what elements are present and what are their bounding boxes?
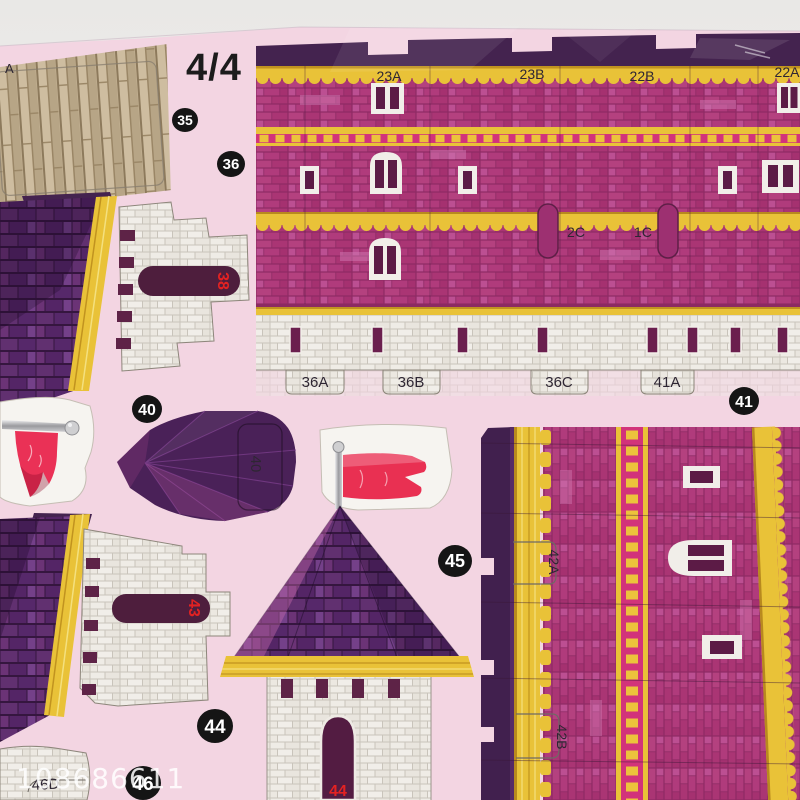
cone-label-40: 40 — [247, 456, 264, 473]
edge-piece-label: A — [5, 61, 14, 76]
page-indicator: 4/4 — [186, 47, 242, 89]
red-label-38: 38 — [214, 272, 231, 290]
badge-41: 41 — [729, 387, 759, 415]
tab-label-42b: 42B — [554, 725, 570, 750]
tab-label-42a: 42A — [546, 550, 562, 576]
badge-40: 40 — [132, 395, 162, 423]
svg-text:41: 41 — [735, 394, 753, 411]
rotated-window — [683, 466, 720, 488]
svg-text:44: 44 — [204, 717, 226, 738]
double-window — [371, 83, 404, 114]
rotated-window — [702, 635, 742, 659]
badge-36: 36 — [217, 151, 245, 177]
tower-wall-piece-42: 42A 42B — [481, 426, 800, 800]
red-label-44: 44 — [329, 783, 347, 800]
arched-window — [370, 152, 402, 194]
svg-text:40: 40 — [138, 402, 156, 419]
red-label-43: 43 — [185, 599, 202, 617]
watermark: 108686611 — [16, 762, 185, 795]
double-window-right — [762, 160, 799, 193]
tab-label-36c: 36C — [545, 374, 573, 391]
badge-35: 35 — [172, 108, 198, 132]
tab-label-36a: 36A — [302, 374, 329, 391]
tab-label-36b: 36B — [398, 374, 425, 391]
arched-window — [369, 238, 401, 280]
puzzle-sheet-photo: A 4/4 2C 1C 23A — [0, 0, 800, 800]
slot-label-2c: 2C — [567, 224, 585, 240]
badge-45: 45 — [438, 545, 472, 577]
slot-cutout — [538, 204, 558, 258]
flag-piece — [0, 397, 94, 506]
castle-wall-piece: 2C 1C 23A 23B 22B 22A 36A 36B 36C 41A — [256, 33, 800, 394]
slot-label-1c: 1C — [634, 224, 652, 240]
panel-label-22b: 22B — [630, 68, 655, 84]
svg-text:45: 45 — [445, 551, 465, 571]
tab-label-41a: 41A — [654, 374, 681, 391]
pole-ball — [333, 442, 344, 453]
rotated-arched-window — [668, 540, 732, 576]
pole-ball — [65, 421, 79, 435]
svg-text:35: 35 — [177, 112, 193, 128]
svg-text:36: 36 — [223, 156, 240, 173]
dark-top-band — [481, 427, 514, 800]
tower-flag-pole — [335, 449, 342, 509]
panel-label-22a: 22A — [775, 64, 800, 80]
panel-label-23b: 23B — [520, 66, 545, 82]
triple-window — [777, 83, 800, 113]
yellow-parapet-band — [514, 427, 540, 800]
scene: A 4/4 2C 1C 23A — [0, 0, 800, 800]
badge-44: 44 — [197, 709, 233, 743]
slot-cutout — [658, 204, 678, 258]
wooden-drawbridge-piece — [0, 44, 177, 210]
